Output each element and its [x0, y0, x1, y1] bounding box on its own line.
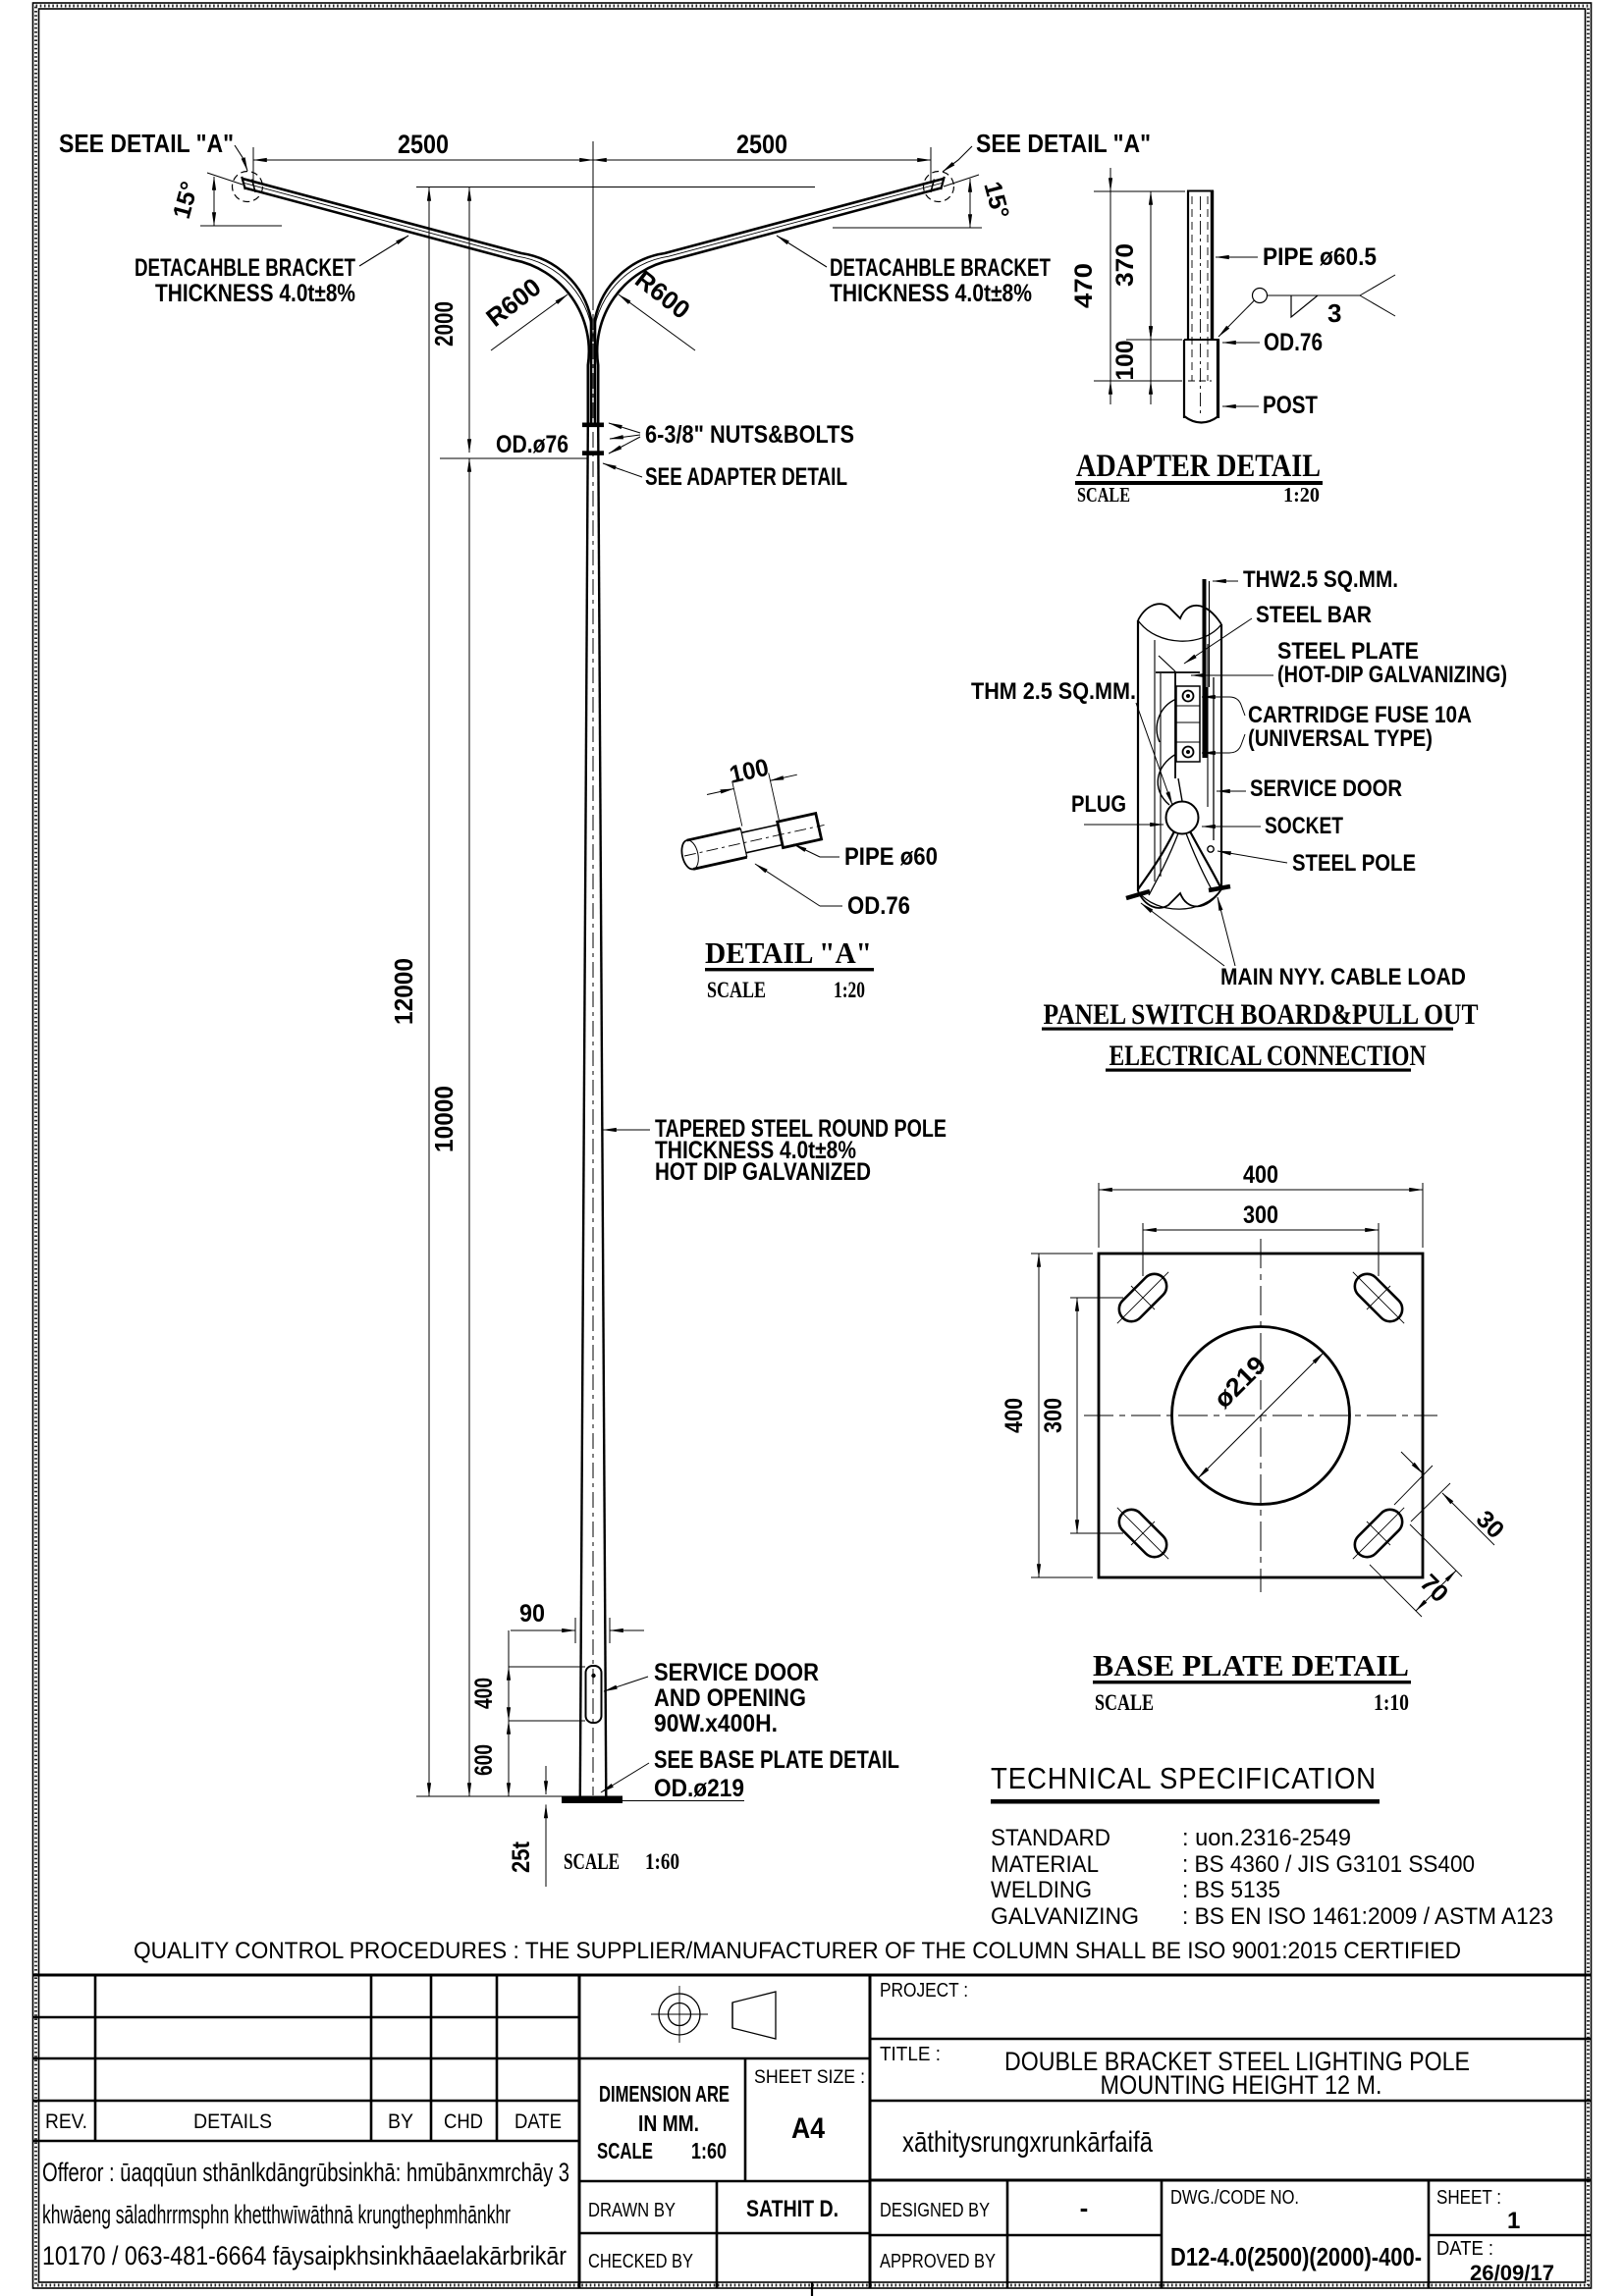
- svg-text:APPROVED BY: APPROVED BY: [880, 2251, 996, 2272]
- svg-text:khwāeng sāladhrrmsphn khetthwī: khwāeng sāladhrrmsphn khetthwīwāthnā kru…: [42, 2200, 511, 2229]
- svg-text:DRAWN BY: DRAWN BY: [588, 2200, 676, 2221]
- svg-text:THICKNESS 4.0t±8%: THICKNESS 4.0t±8%: [155, 280, 355, 307]
- svg-text:BY: BY: [388, 2110, 413, 2133]
- svg-text:DETAIL "A": DETAIL "A": [705, 935, 872, 970]
- svg-text:SHEET :: SHEET :: [1436, 2187, 1501, 2209]
- svg-text:SOCKET: SOCKET: [1265, 813, 1343, 839]
- svg-text:THICKNESS 4.0t±8%: THICKNESS 4.0t±8%: [830, 280, 1032, 307]
- svg-text:OD.ø219: OD.ø219: [654, 1775, 744, 1802]
- svg-text:DIMENSION ARE: DIMENSION ARE: [599, 2081, 730, 2107]
- svg-text:SERVICE DOOR: SERVICE DOOR: [1250, 775, 1402, 802]
- svg-text:AND OPENING: AND OPENING: [654, 1684, 806, 1712]
- svg-text:SHEET SIZE :: SHEET SIZE :: [754, 2067, 865, 2088]
- svg-text:HOT DIP GALVANIZED: HOT DIP GALVANIZED: [655, 1158, 871, 1186]
- svg-text:300: 300: [1243, 1201, 1278, 1229]
- svg-text:SCALE: SCALE: [564, 1849, 620, 1874]
- svg-text:400: 400: [1001, 1398, 1028, 1433]
- svg-text:SEE DETAIL "A": SEE DETAIL "A": [976, 129, 1151, 158]
- svg-text:1:60: 1:60: [645, 1849, 679, 1874]
- svg-text:OD.76: OD.76: [847, 892, 910, 920]
- svg-text:90: 90: [519, 1600, 545, 1628]
- svg-text:PANEL SWITCH BOARD&PULL OUT: PANEL SWITCH BOARD&PULL OUT: [1044, 998, 1479, 1031]
- svg-text:1:20: 1:20: [834, 978, 865, 1002]
- svg-text:-: -: [1080, 2193, 1089, 2222]
- svg-text:: BS 5135: : BS 5135: [1182, 1877, 1280, 1903]
- svg-text:POST: POST: [1263, 392, 1318, 419]
- svg-text:370: 370: [1111, 243, 1139, 287]
- svg-text:10170 / 063-481-6664 fāysaipkh: 10170 / 063-481-6664 fāysaipkhsinkhāaela…: [42, 2241, 567, 2270]
- svg-text:(HOT-DIP GALVANIZING): (HOT-DIP GALVANIZING): [1277, 662, 1507, 688]
- svg-text:SCALE: SCALE: [707, 978, 766, 1002]
- svg-text:: uon.2316-2549: : uon.2316-2549: [1182, 1825, 1351, 1851]
- svg-text:400: 400: [1243, 1161, 1278, 1189]
- svg-text:DWG./CODE NO.: DWG./CODE NO.: [1170, 2187, 1299, 2209]
- svg-text:SEE DETAIL "A": SEE DETAIL "A": [59, 129, 234, 158]
- svg-text:STANDARD: STANDARD: [991, 1825, 1110, 1851]
- svg-text:STEEL POLE: STEEL POLE: [1292, 850, 1416, 877]
- svg-text:CHECKED BY: CHECKED BY: [588, 2251, 693, 2272]
- svg-text:DATE: DATE: [514, 2110, 562, 2133]
- svg-text:xāthitysrungxrunkārfaifā: xāthitysrungxrunkārfaifā: [902, 2126, 1153, 2159]
- svg-text:THW2.5 SQ.MM.: THW2.5 SQ.MM.: [1243, 566, 1398, 593]
- svg-text:CHD: CHD: [444, 2110, 483, 2133]
- svg-text:STEEL BAR: STEEL BAR: [1256, 602, 1372, 628]
- svg-text:SCALE: SCALE: [1077, 483, 1130, 507]
- svg-text:ADAPTER DETAIL: ADAPTER DETAIL: [1076, 449, 1321, 484]
- svg-text:PLUG: PLUG: [1071, 791, 1126, 818]
- svg-text:DATE :: DATE :: [1436, 2238, 1493, 2260]
- svg-text:BASE PLATE DETAIL: BASE PLATE DETAIL: [1093, 1648, 1409, 1682]
- svg-text:A4: A4: [791, 2112, 825, 2145]
- svg-text:STEEL PLATE: STEEL PLATE: [1277, 638, 1419, 665]
- svg-text:300: 300: [1040, 1398, 1067, 1433]
- svg-text:D12-4.0(2500)(2000)-400-: D12-4.0(2500)(2000)-400-: [1170, 2242, 1422, 2271]
- svg-text:SCALE: SCALE: [597, 2138, 653, 2163]
- svg-text:CARTRIDGE FUSE 10A: CARTRIDGE FUSE 10A: [1248, 702, 1472, 728]
- svg-text:REV.: REV.: [45, 2110, 87, 2133]
- svg-text:25t: 25t: [508, 1841, 535, 1873]
- svg-text:TITLE :: TITLE :: [880, 2044, 941, 2065]
- svg-text:PIPE ø60: PIPE ø60: [844, 843, 938, 871]
- svg-text:OD.76: OD.76: [1264, 329, 1323, 356]
- svg-text:PIPE ø60.5: PIPE ø60.5: [1263, 243, 1377, 271]
- svg-text:THM 2.5 SQ.MM.: THM 2.5 SQ.MM.: [971, 678, 1136, 705]
- svg-text:DETACAHBLE BRACKET: DETACAHBLE BRACKET: [135, 254, 355, 282]
- svg-text:90W.x400H.: 90W.x400H.: [654, 1710, 778, 1737]
- svg-text:470: 470: [1070, 263, 1098, 308]
- svg-text:MOUNTING HEIGHT 12 M.: MOUNTING HEIGHT 12 M.: [1101, 2070, 1382, 2100]
- svg-text:SCALE: SCALE: [1095, 1690, 1154, 1715]
- svg-text:1:20: 1:20: [1283, 483, 1320, 507]
- svg-text:ELECTRICAL CONNECTION: ELECTRICAL CONNECTION: [1110, 1040, 1427, 1072]
- svg-text:SATHIT D.: SATHIT D.: [746, 2196, 839, 2222]
- svg-text:Offeror : ūaqqūun sthānlkdāngr: Offeror : ūaqqūun sthānlkdāngrūbsinkhā: …: [42, 2158, 569, 2187]
- svg-text:OD.ø76: OD.ø76: [496, 431, 568, 458]
- svg-text:DETACAHBLE BRACKET: DETACAHBLE BRACKET: [830, 254, 1051, 282]
- svg-text:MATERIAL: MATERIAL: [991, 1851, 1099, 1878]
- svg-text:SERVICE DOOR: SERVICE DOOR: [654, 1659, 819, 1686]
- svg-text:1:60: 1:60: [691, 2138, 727, 2163]
- svg-text:GALVANIZING: GALVANIZING: [991, 1903, 1139, 1930]
- svg-text:QUALITY CONTROL PROCEDURES :: QUALITY CONTROL PROCEDURES : THE SUPPLIE…: [134, 1938, 1461, 1964]
- svg-text:26/09/17: 26/09/17: [1470, 2261, 1554, 2285]
- svg-text:12000: 12000: [389, 958, 418, 1025]
- svg-text:3: 3: [1327, 298, 1341, 328]
- svg-text:SEE ADAPTER DETAIL: SEE ADAPTER DETAIL: [645, 463, 847, 491]
- svg-text:2500: 2500: [398, 130, 449, 159]
- svg-text:400: 400: [470, 1678, 498, 1709]
- svg-text:100: 100: [1111, 341, 1139, 381]
- svg-text:MAIN NYY. CABLE LOAD: MAIN NYY. CABLE LOAD: [1220, 964, 1466, 990]
- svg-text:10000: 10000: [429, 1086, 459, 1152]
- svg-text:: BS EN ISO 1461:2009 / ASTM A: : BS EN ISO 1461:2009 / ASTM A123: [1182, 1903, 1553, 1930]
- svg-text:1:10: 1:10: [1374, 1690, 1409, 1715]
- svg-text:: BS 4360 / JIS G3101 SS400: : BS 4360 / JIS G3101 SS400: [1182, 1851, 1475, 1878]
- svg-text:1: 1: [1507, 2208, 1520, 2234]
- svg-text:TECHNICAL SPECIFICATION: TECHNICAL SPECIFICATION: [991, 1761, 1377, 1795]
- svg-text:SEE BASE PLATE DETAIL: SEE BASE PLATE DETAIL: [654, 1746, 899, 1774]
- svg-text:DETAILS: DETAILS: [193, 2110, 272, 2133]
- svg-text:600: 600: [470, 1744, 498, 1776]
- svg-text:WELDING: WELDING: [991, 1877, 1092, 1903]
- svg-text:PROJECT :: PROJECT :: [880, 1980, 968, 2002]
- svg-text:DESIGNED BY: DESIGNED BY: [880, 2200, 990, 2221]
- svg-text:IN MM.: IN MM.: [638, 2110, 699, 2136]
- svg-text:2000: 2000: [429, 301, 459, 347]
- svg-text:(UNIVERSAL TYPE): (UNIVERSAL TYPE): [1248, 725, 1433, 752]
- svg-text:2500: 2500: [736, 130, 787, 159]
- svg-text:6-3/8" NUTS&BOLTS: 6-3/8" NUTS&BOLTS: [645, 421, 854, 449]
